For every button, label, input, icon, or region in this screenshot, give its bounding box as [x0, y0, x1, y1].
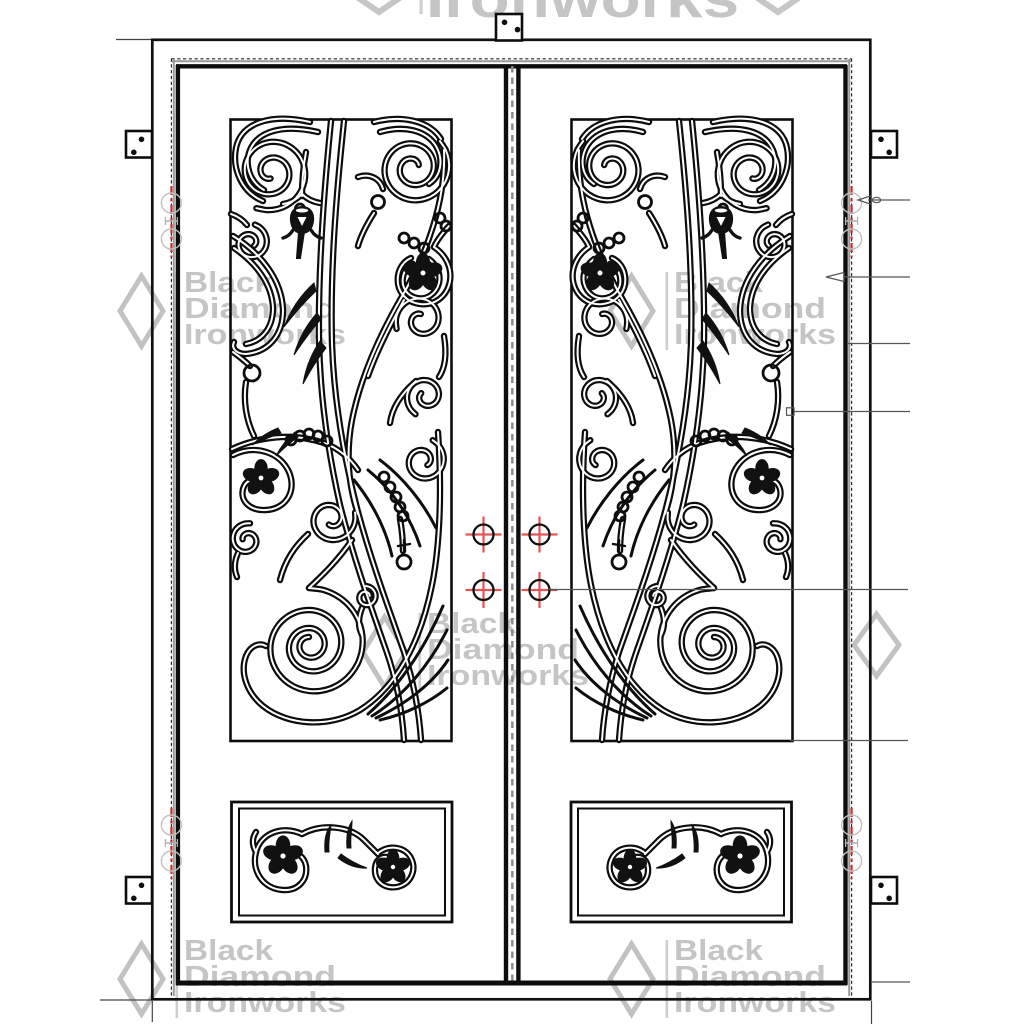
svg-text:Ironworks: Ironworks — [426, 0, 739, 29]
